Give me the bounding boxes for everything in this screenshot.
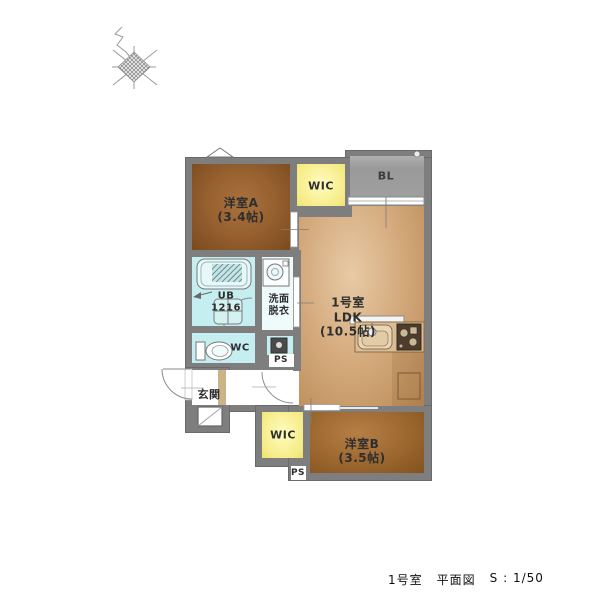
label-senmen: 洗面 脱衣 [269,294,290,318]
yoshitsu-b-size: (3.5帖) [338,451,385,465]
vent-triangle-icon [207,148,233,157]
label-yoshitsu-b: 洋室B (3.5帖) [338,437,385,465]
ub-name: UB [211,291,241,303]
room-ps-mid [267,336,296,355]
label-ub: UB 1216 [211,291,241,314]
north-compass-icon [112,27,157,89]
ldk-name: LDK [320,310,376,325]
senmen-line1: 洗面 [269,294,290,306]
label-wic-top: WIC [308,180,334,193]
floorplan-canvas: 洋室A (3.4帖) WIC BL 1号室 LDK (10.5帖) UB 121… [0,0,600,600]
wall-ldk-left [293,250,301,371]
label-balcony: BL [378,170,394,183]
ub-size: 1216 [211,302,241,314]
label-yoshitsu-a: 洋室A (3.4帖) [217,196,264,224]
caption-scale: S : 1/50 [490,571,544,588]
label-ps-mid: PS [274,355,288,365]
label-genkan: 玄関 [198,386,221,402]
caption: 1号室 平面図 S : 1/50 [388,571,544,588]
label-wic-bottom: WIC [270,429,296,442]
yoshitsu-a-name: 洋室A [217,196,264,210]
ldk-size: (10.5帖) [320,324,376,339]
yoshitsu-b-name: 洋室B [338,437,385,451]
label-ldk: 1号室 LDK (10.5帖) [320,295,376,339]
label-wc: WC [230,343,249,354]
ldk-unit: 1号室 [320,295,376,310]
label-ps-bottom: PS [291,468,305,478]
caption-room: 1号室 [388,571,423,588]
wall-wic-bottom [295,206,352,217]
caption-drawing: 平面図 [437,571,476,588]
yoshitsu-a-size: (3.4帖) [217,210,264,224]
senmen-line2: 脱衣 [269,306,290,318]
